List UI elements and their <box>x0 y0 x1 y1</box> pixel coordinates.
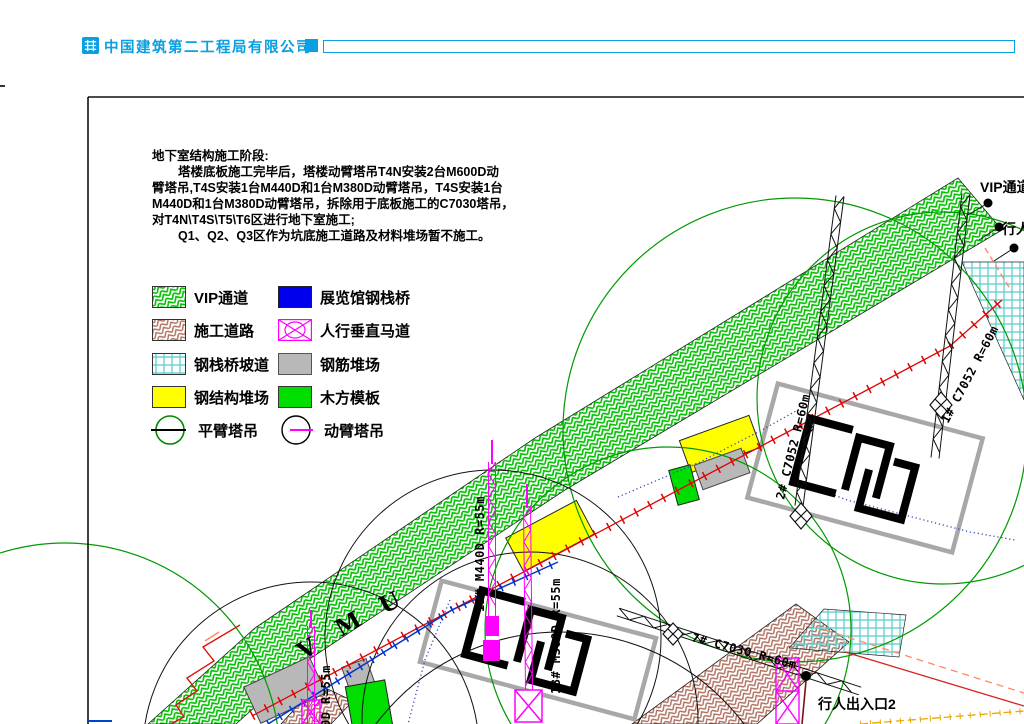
crane-12-base <box>485 616 499 636</box>
legend-label: 钢结构堆场 <box>194 387 269 408</box>
page-header: 中国建筑第二工程局有限公司 <box>0 0 1024 70</box>
cyan-grid-swatch <box>152 353 186 375</box>
pedestrian-entrance-1-label: 行人出入口1 <box>1001 221 1024 237</box>
yellow-solid-swatch <box>152 386 186 408</box>
entrance-2-leader <box>802 681 806 724</box>
notes-line: 地下室结构施工阶段: <box>152 148 497 164</box>
gold-ticked-line <box>860 711 1024 724</box>
crane-12-base-2 <box>483 640 500 661</box>
legend-label: 施工道路 <box>194 320 254 341</box>
legend-label: VIP通道 <box>194 287 248 308</box>
legend-label: 平臂塔吊 <box>198 420 258 441</box>
crane-1-label: 1# C7052 R=60m <box>938 323 1001 425</box>
notes-line: Q1、Q2、Q3区作为坑底施工道路及材料堆场暂不施工。 <box>152 228 497 244</box>
notes-line: 对T4N\T4S\T5\T6区进行地下室施工; <box>152 212 497 228</box>
site-plan-drawing-page: 12# M440D R=55m 13# M380D R=55m 0D R=55m… <box>0 0 1024 724</box>
legend-label: 动臂塔吊 <box>324 420 384 441</box>
construction-stage-notes: 地下室结构施工阶段: 塔楼底板施工完毕后，塔楼动臂塔吊T4N安装2台M600D动… <box>152 148 497 244</box>
legend-label: 木方模板 <box>320 387 380 408</box>
timber-yard-2 <box>345 680 392 724</box>
vip-channel-label: VIP通道 <box>980 179 1024 195</box>
flat-arm-crane-symbol <box>150 411 190 449</box>
crane-bottomleft-label: 0D R=55m <box>319 665 333 724</box>
legend-item-rebar-yard: 钢筋堆场 <box>278 352 380 376</box>
legend-item-luffing-crane: 动臂塔吊 <box>276 410 384 450</box>
legend-item-construction-road: 施工道路 <box>152 318 254 342</box>
orange-dash-segment <box>205 632 219 641</box>
crane-7-slew-joint <box>663 623 683 645</box>
legend-item-trestle-ramp: 钢栈桥坡道 <box>152 352 269 376</box>
green-solid-swatch <box>278 386 312 408</box>
legend-item-vip-channel: VIP通道 <box>152 285 248 309</box>
header-title-bar <box>323 40 1015 53</box>
legend-label: 钢筋堆场 <box>320 354 380 375</box>
notes-line: 塔楼底板施工完毕后，塔楼动臂塔吊T4N安装2台M600D动 <box>152 164 497 180</box>
legend-label: 展览馆钢栈桥 <box>320 287 410 308</box>
crane-13-label: 13# M380D R=55m <box>549 578 563 694</box>
legend-label: 钢栈桥坡道 <box>194 354 269 375</box>
luffing-crane-symbol <box>276 411 316 449</box>
blue-solid-swatch <box>278 286 312 308</box>
margin-tick <box>0 85 5 87</box>
crane-12-label: 12# M440D R=55m <box>473 496 487 612</box>
legend-item-flat-arm-crane: 平臂塔吊 <box>150 410 258 450</box>
legend-item-pedestrian-ramp: 人行垂直马道 <box>278 318 410 342</box>
notes-line: M440D和1台M380D动臂塔吊，拆除用于底板施工的C7030塔吊， <box>152 196 497 212</box>
pedestrian-entrance-2-label: 行人出入口2 <box>817 696 896 712</box>
brown-hatch-swatch <box>152 319 186 341</box>
entrance-2-marker-dot <box>801 671 811 681</box>
magenta-ramp-swatch <box>278 319 312 341</box>
company-logo-icon <box>82 37 99 54</box>
legend-item-timber-formwork: 木方模板 <box>278 385 380 409</box>
legend-item-exhibition-bridge: 展览馆钢栈桥 <box>278 285 410 309</box>
crane-13-base <box>515 690 542 722</box>
header-square-mark <box>305 39 318 52</box>
notes-line: 臂塔吊,T4S安装1台M440D和1台M380D动臂塔吊，T4S安装1台 <box>152 180 497 196</box>
company-name: 中国建筑第二工程局有限公司 <box>104 36 312 57</box>
gray-solid-swatch <box>278 353 312 375</box>
green-hatch-swatch <box>152 286 186 308</box>
legend-item-steel-yard: 钢结构堆场 <box>152 385 269 409</box>
legend-label: 人行垂直马道 <box>320 320 410 341</box>
